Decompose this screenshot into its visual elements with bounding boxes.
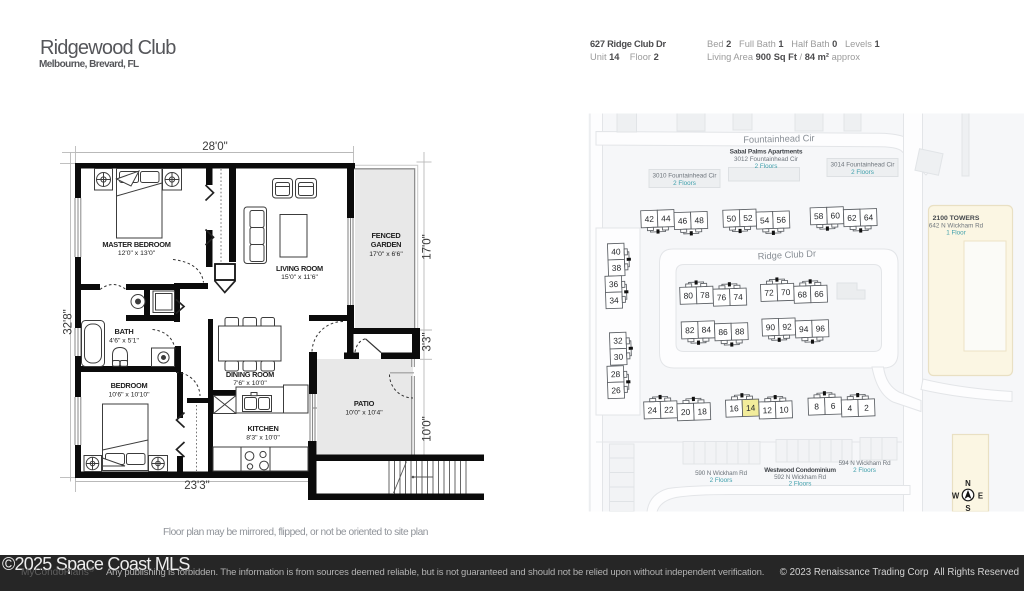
svg-text:3012 Fountainhead Cir: 3012 Fountainhead Cir xyxy=(734,156,798,163)
svg-text:N: N xyxy=(965,479,971,488)
svg-text:2 Floors: 2 Floors xyxy=(853,467,876,474)
svg-text:16: 16 xyxy=(729,403,739,413)
svg-text:68: 68 xyxy=(798,289,808,299)
svg-text:2 Floors: 2 Floors xyxy=(789,481,812,488)
svg-text:74: 74 xyxy=(733,292,743,302)
svg-text:E: E xyxy=(978,492,983,501)
svg-text:94: 94 xyxy=(799,324,809,334)
svg-text:590 N Wickham Rd: 590 N Wickham Rd xyxy=(695,470,747,477)
svg-text:10: 10 xyxy=(779,404,789,414)
svg-text:2: 2 xyxy=(864,403,869,413)
svg-text:18: 18 xyxy=(697,406,707,416)
svg-text:2 Floors: 2 Floors xyxy=(673,180,696,187)
svg-text:88: 88 xyxy=(735,326,745,336)
svg-text:64: 64 xyxy=(864,212,874,222)
svg-text:12: 12 xyxy=(763,405,773,415)
svg-text:48: 48 xyxy=(694,215,704,225)
svg-text:34: 34 xyxy=(609,295,619,305)
svg-text:92: 92 xyxy=(782,322,792,332)
svg-text:1 Floor: 1 Floor xyxy=(946,230,966,237)
svg-text:2 Floors: 2 Floors xyxy=(710,477,733,484)
svg-text:42: 42 xyxy=(644,214,654,224)
svg-text:78: 78 xyxy=(700,290,710,300)
svg-text:4: 4 xyxy=(847,403,852,413)
svg-text:56: 56 xyxy=(776,215,786,225)
svg-text:86: 86 xyxy=(718,327,728,337)
svg-text:24: 24 xyxy=(647,405,657,415)
svg-text:90: 90 xyxy=(766,322,776,332)
svg-text:32: 32 xyxy=(613,335,623,345)
svg-text:20: 20 xyxy=(681,407,691,417)
svg-text:2100 TOWERS: 2100 TOWERS xyxy=(933,215,980,222)
svg-text:72: 72 xyxy=(764,287,774,297)
svg-text:28: 28 xyxy=(611,369,621,379)
svg-text:Fountainhead Cir: Fountainhead Cir xyxy=(743,133,815,145)
svg-text:44: 44 xyxy=(661,213,671,223)
svg-text:2 Floors: 2 Floors xyxy=(851,169,874,176)
svg-text:3010 Fountainhead Cir: 3010 Fountainhead Cir xyxy=(652,173,716,180)
svg-text:22: 22 xyxy=(664,404,674,414)
svg-text:2 Floors: 2 Floors xyxy=(755,163,778,170)
svg-text:W: W xyxy=(952,492,960,501)
svg-text:30: 30 xyxy=(614,352,624,362)
svg-text:40: 40 xyxy=(611,246,621,256)
svg-text:8: 8 xyxy=(814,401,819,411)
svg-text:Westwood Condominium: Westwood Condominium xyxy=(764,467,836,474)
svg-text:66: 66 xyxy=(814,289,824,299)
svg-text:80: 80 xyxy=(683,290,693,300)
svg-text:46: 46 xyxy=(678,216,688,226)
svg-text:38: 38 xyxy=(612,263,622,273)
svg-text:S: S xyxy=(965,504,970,513)
svg-text:14: 14 xyxy=(746,403,756,413)
svg-text:50: 50 xyxy=(727,213,737,223)
svg-text:60: 60 xyxy=(830,210,840,220)
svg-text:6: 6 xyxy=(831,401,836,411)
svg-text:3014 Fountainhead Cir: 3014 Fountainhead Cir xyxy=(830,162,894,169)
svg-text:62: 62 xyxy=(847,213,857,223)
svg-text:58: 58 xyxy=(814,211,824,221)
svg-text:642 N Wickham Rd: 642 N Wickham Rd xyxy=(929,223,984,230)
svg-text:Sabal Palms Apartments: Sabal Palms Apartments xyxy=(730,149,803,156)
svg-text:70: 70 xyxy=(781,287,791,297)
svg-text:82: 82 xyxy=(685,325,695,335)
svg-text:594 N Wickham Rd: 594 N Wickham Rd xyxy=(839,460,891,467)
svg-text:36: 36 xyxy=(609,279,619,289)
svg-text:26: 26 xyxy=(611,385,621,395)
svg-text:84: 84 xyxy=(702,324,712,334)
svg-text:96: 96 xyxy=(816,323,826,333)
svg-text:54: 54 xyxy=(760,215,770,225)
svg-text:52: 52 xyxy=(743,213,753,223)
svg-text:76: 76 xyxy=(717,292,727,302)
